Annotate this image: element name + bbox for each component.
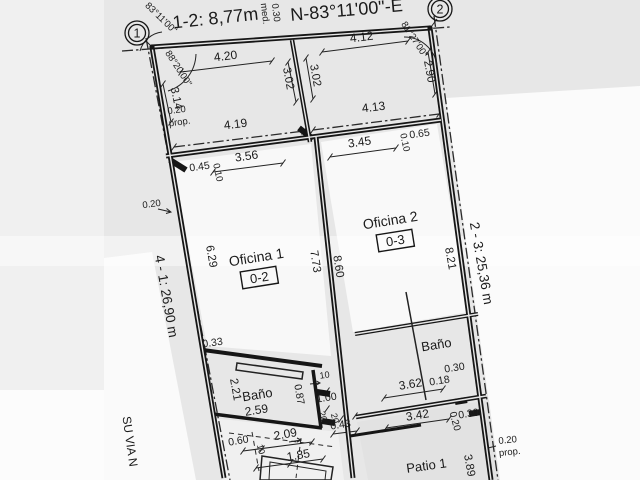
scan-edge-left-bottom (0, 390, 104, 480)
dim-2-59-text: 2.59 (244, 401, 270, 419)
vertex-number: 2 (437, 3, 444, 17)
dim-segment-1-2-text: 1-2: 8,77m (172, 4, 260, 33)
angle-corner-1-inner-text: 88°20'00" (162, 49, 193, 89)
dim-4-19-text: 4.19 (223, 116, 248, 133)
dim-0-10-door-text: 10 (319, 369, 330, 380)
room-bano-2-text: Baño (420, 335, 452, 355)
dim-1-00-text: 1.00 (315, 390, 337, 405)
white-patch-left (104, 252, 196, 480)
dim-0-10-door: 10 (319, 369, 330, 380)
room-bano-1: Baño (241, 385, 273, 405)
label-prop-left: prop. (168, 116, 191, 130)
label-prop-right: prop. (498, 446, 521, 459)
dim-2-90: 2.90 (421, 59, 437, 83)
label-prop-right-text: prop. (498, 446, 521, 459)
dim-4-20-text: 4.20 (213, 48, 238, 65)
room-code-0-2-text: 0-2 (249, 269, 270, 287)
room-code-0-3-text: 0-3 (385, 232, 406, 250)
dim-4-13-text: 4.13 (361, 99, 386, 116)
room-bano-2: Baño (420, 335, 452, 355)
dim-3-02-left: 3.02 (280, 66, 296, 90)
dim-0-20-prop: 0.20 (167, 104, 187, 117)
bearing-north: N-83°11'00"-E (289, 0, 403, 25)
angle-corner-2-text: 81°27'00" (398, 20, 429, 60)
dim-3-02-left-text: 3.02 (280, 66, 296, 90)
dim-4-20: 4.20 (213, 48, 238, 65)
dim-3-02-right-text: 3.02 (307, 63, 323, 87)
bearing-north-text: N-83°11'00"-E (289, 0, 403, 25)
dim-4-19: 4.19 (223, 116, 248, 133)
label-med: med. (258, 3, 271, 25)
vertex-1-marker: 1 (125, 21, 149, 45)
corner-point-1 (149, 44, 154, 49)
scanned-floor-plan: 12 1-2: 8,77mN-83°11'00"-E0.30med.83°11'… (0, 0, 640, 480)
plan-drawing: 12 1-2: 8,77mN-83°11'00"-E0.30med.83°11'… (0, 0, 640, 480)
dim-segment-1-2: 1-2: 8,77m (172, 4, 260, 33)
dim-3-62-text: 3.62 (398, 375, 424, 393)
dim-3-62: 3.62 (398, 375, 424, 393)
label-prop-left-text: prop. (168, 116, 191, 130)
dim-4-12: 4.12 (349, 29, 374, 46)
angle-corner-2: 81°27'00" (398, 20, 429, 60)
dim-3-02-right: 3.02 (307, 63, 323, 87)
dim-0-33: 0.33 (202, 336, 224, 351)
vertex-number: 1 (134, 27, 141, 41)
dim-4-13: 4.13 (361, 99, 386, 116)
vertex-2-marker: 2 (428, 0, 452, 21)
dim-0-20-prop-text: 0.20 (167, 104, 187, 117)
label-med-text: med. (258, 3, 271, 25)
dim-2-59: 2.59 (244, 401, 270, 419)
dim-0-33-text: 0.33 (202, 336, 224, 351)
room-bano-1-text: Baño (241, 385, 273, 405)
dim-0-87-text: 0.87 (291, 383, 306, 405)
dim-prop-right-text: 0.20 (498, 434, 518, 447)
dim-2-90-text: 2.90 (421, 59, 437, 83)
counter-bano1 (236, 363, 303, 379)
dim-1-00: 1.00 (315, 390, 337, 405)
dim-0-18: 0.18 (428, 373, 450, 388)
dim-0-18-text: 0.18 (428, 373, 450, 388)
dim-0-87: 0.87 (291, 383, 306, 405)
corner-point-2 (427, 25, 432, 30)
dim-prop-right: 0.20 (498, 434, 518, 447)
angle-corner-1-inner: 88°20'00" (162, 49, 193, 89)
dim-4-12-text: 4.12 (349, 29, 374, 46)
